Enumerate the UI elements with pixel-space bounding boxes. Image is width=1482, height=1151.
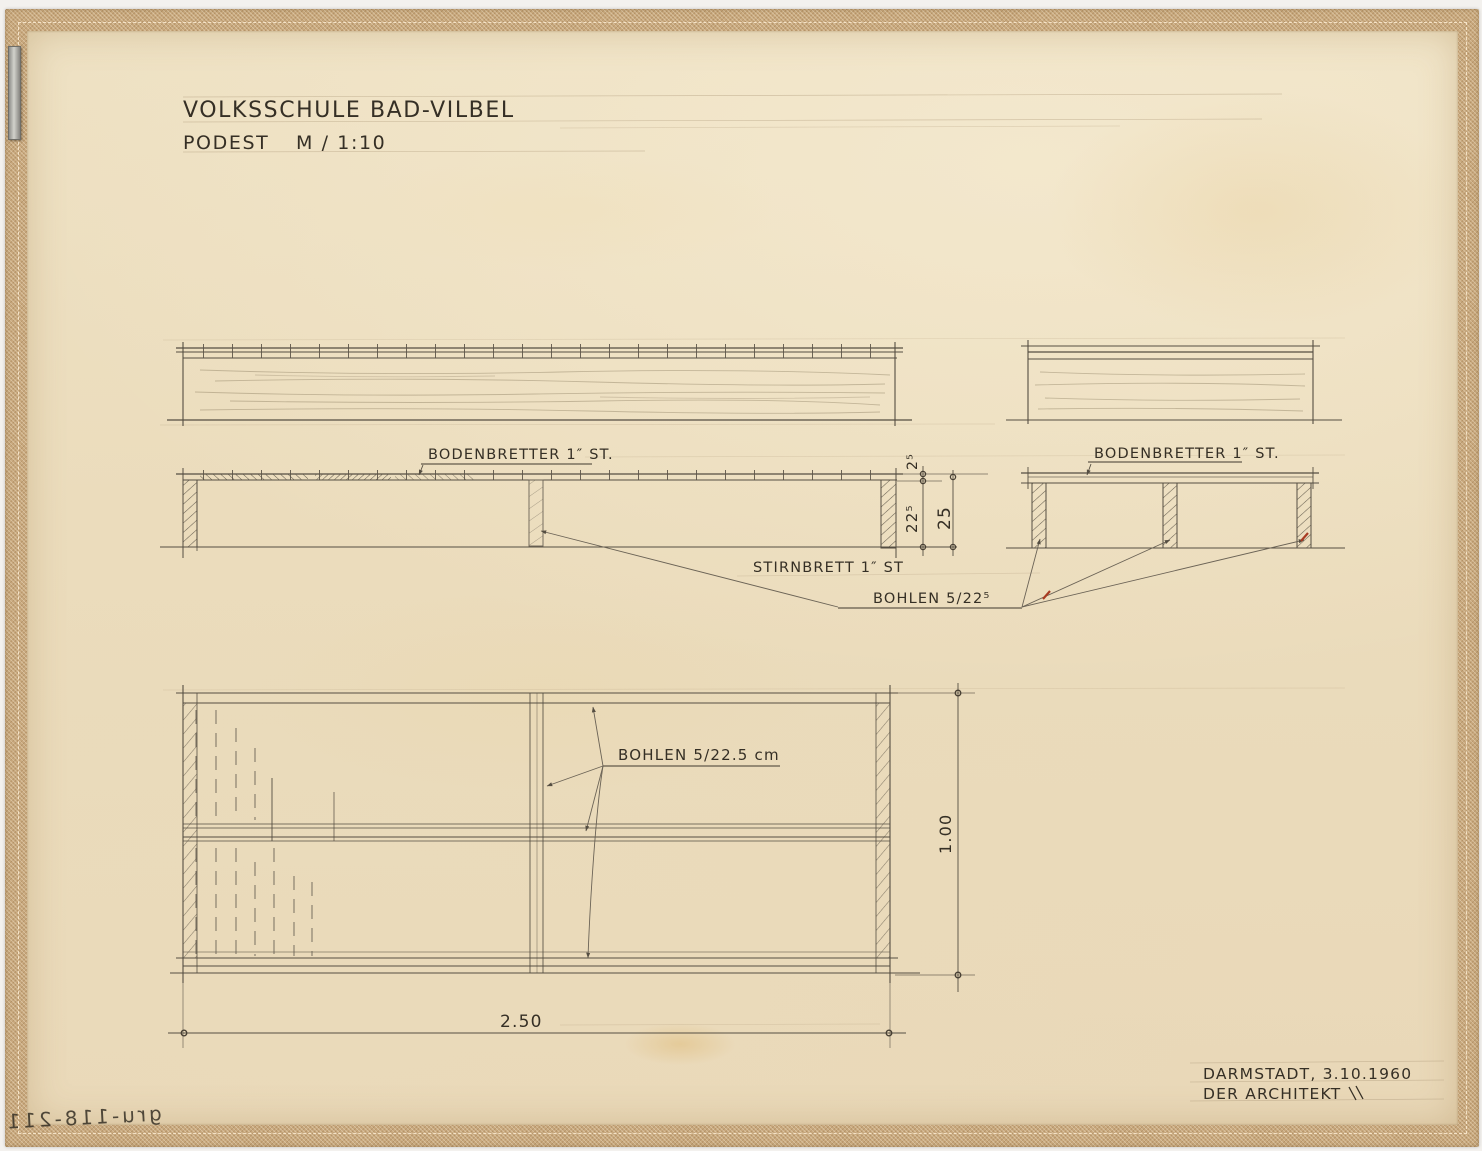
plan-edge-member-right [876, 703, 890, 958]
end-elevation-view [1006, 340, 1342, 424]
footer-block: DARMSTADT, 3.10.1960 DER ARCHITEKT [1203, 1065, 1412, 1103]
end-post-left [183, 480, 197, 547]
middle-post [529, 480, 543, 546]
plan-annotation: BOHLEN 5/22.5 cm [547, 707, 780, 958]
drawing-subtitle-podest: PODEST [183, 132, 269, 154]
architectural-drawing: VOLKSSCHULE BAD-VILBEL PODEST M / 1:10 [0, 0, 1482, 1151]
footer-signature: DER ARCHITEKT [1203, 1085, 1341, 1103]
label-bodenbretter-left: BODENBRETTER 1″ ST. [428, 447, 614, 463]
signature-flourish [1349, 1086, 1363, 1100]
label-stirnbrett: STIRNBRETT 1″ ST [753, 560, 904, 576]
plan-center-joint [530, 693, 543, 973]
dim-plan-length: 2.50 [500, 1012, 543, 1032]
wood-grain [195, 370, 890, 413]
hidden-bohlen-lines [196, 710, 312, 956]
plan-edge-member-left [183, 703, 197, 958]
side-section-view [160, 468, 957, 558]
dim-plan-width: 1.00 [936, 814, 955, 854]
plan-dimensions: 1.00 2.50 [168, 683, 975, 1048]
label-bohlen-plan: BOHLEN 5/22.5 cm [618, 746, 780, 764]
plan-middle-joint [183, 824, 890, 841]
drawing-title: VOLKSSCHULE BAD-VILBEL [183, 98, 515, 123]
section-dimensions: 2⁵ 22⁵ 25 [897, 453, 988, 556]
wood-grain [1035, 372, 1305, 411]
dim-total-height: 25 [935, 506, 955, 530]
end-section-view [1006, 467, 1345, 548]
title-block: VOLKSSCHULE BAD-VILBEL PODEST M / 1:10 [183, 98, 515, 154]
drawing-scale: M / 1:10 [296, 132, 386, 154]
dim-clear-height: 22⁵ [903, 504, 921, 533]
plan-view [170, 685, 920, 983]
reverse-stamp-text: gru-118-211 [4, 1101, 162, 1133]
label-bodenbretter-right: BODENBRETTER 1″ ST. [1094, 446, 1280, 462]
side-elevation-view [167, 342, 912, 426]
footer-place-date: DARMSTADT, 3.10.1960 [1203, 1065, 1412, 1083]
stirnbrett-board [881, 480, 896, 548]
dim-deck-thickness: 2⁵ [905, 453, 921, 470]
bohle-post [1032, 483, 1046, 548]
label-bohlen-section: BOHLEN 5/22⁵ [873, 591, 990, 607]
reverse-stamp: gru-118-211 [4, 1101, 162, 1133]
bohle-post [1163, 483, 1177, 548]
scanned-drawing-sheet: VOLKSSCHULE BAD-VILBEL PODEST M / 1:10 [0, 0, 1482, 1151]
